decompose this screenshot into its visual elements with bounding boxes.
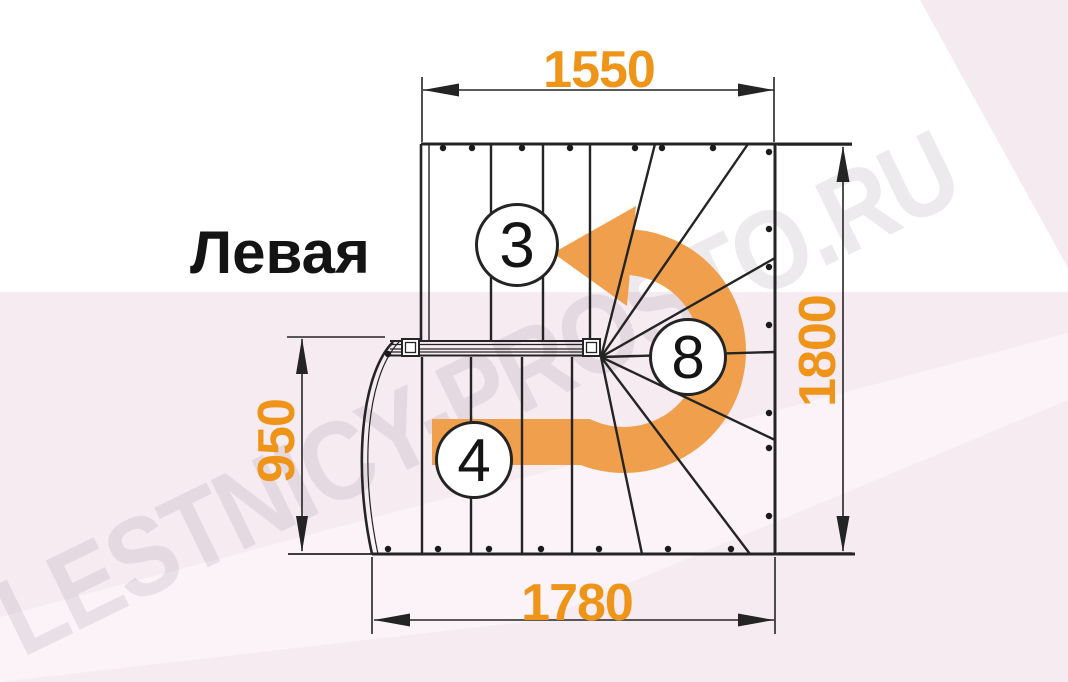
lower-flight-step-count: 4 <box>457 426 490 495</box>
dimension-right-label: 1800 <box>792 241 844 461</box>
lower-flight-step-count-badge: 4 <box>435 421 513 499</box>
dimension-left-label: 950 <box>251 331 303 551</box>
dimension-bottom-label: 1780 <box>467 573 687 633</box>
stair-plan-diagram: LESTNICY-PROSTO.RU <box>0 0 1068 682</box>
left-newel-post <box>402 339 419 356</box>
dimension-top-label: 1550 <box>489 40 709 100</box>
right-newel-post <box>583 339 600 356</box>
upper-flight-step-count-badge: 3 <box>475 203 559 287</box>
upper-flight-step-count: 3 <box>499 208 535 282</box>
winder-step-count: 8 <box>671 323 704 392</box>
winder-step-count-badge: 8 <box>649 318 727 396</box>
orientation-label: Левая <box>190 218 370 287</box>
